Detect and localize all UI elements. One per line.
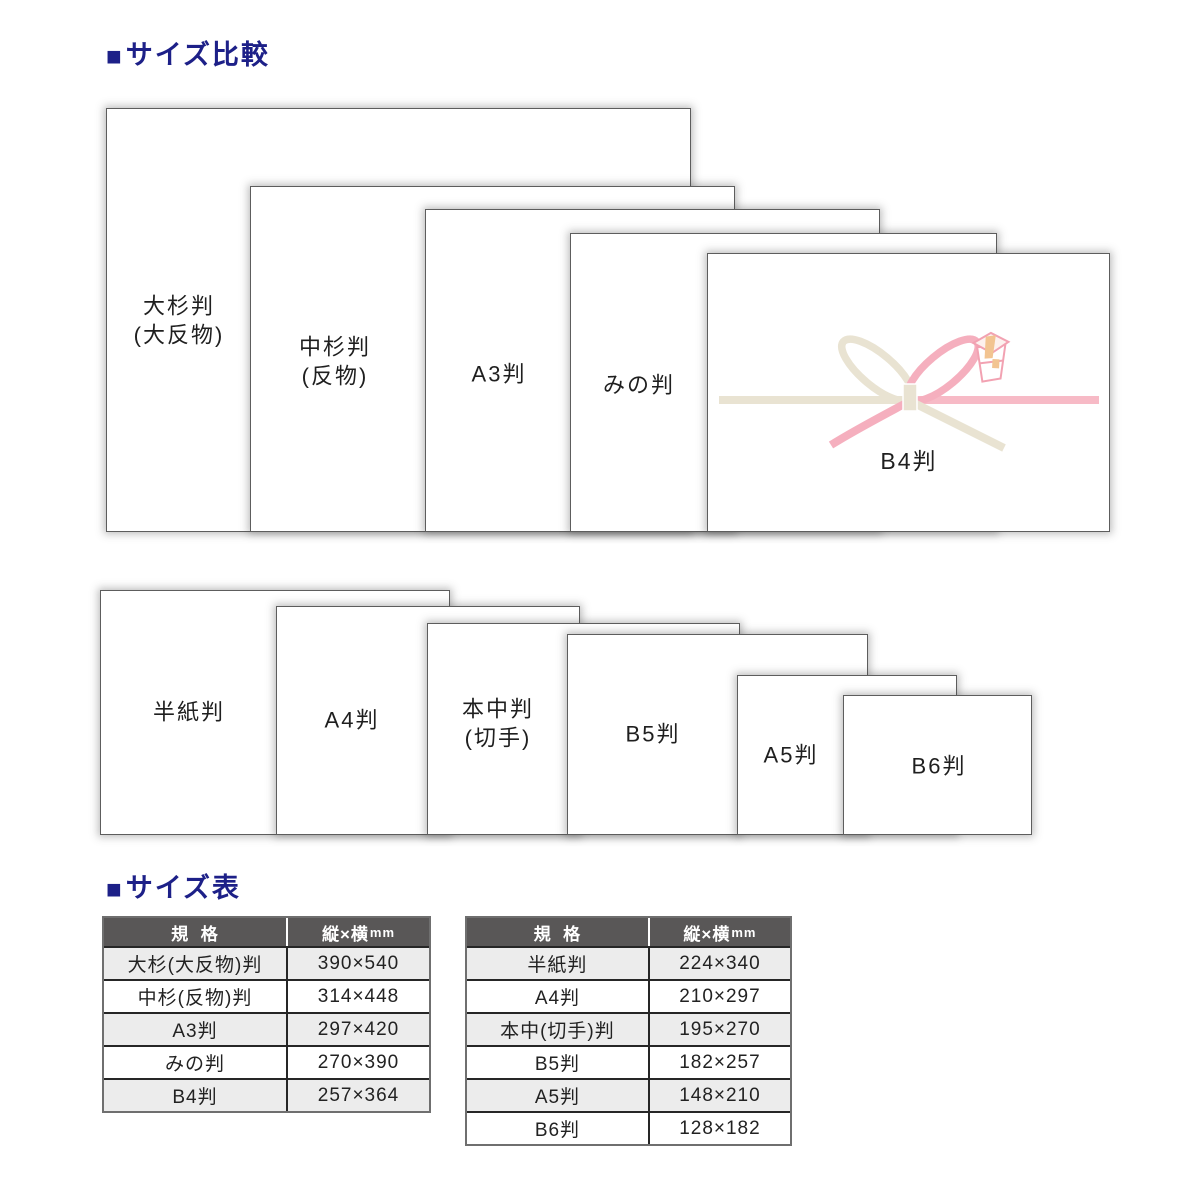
size-value-cell: 195×270 xyxy=(650,1014,790,1045)
heading-bullet-icon: ■ xyxy=(106,43,124,69)
sheet-label-a5: A5判 xyxy=(764,742,819,771)
sheet-label-oosugi: 大杉判 (大反物) xyxy=(134,292,225,349)
size-value-cell: 297×420 xyxy=(288,1014,429,1045)
table-row: B5判 182×257 xyxy=(467,1045,790,1078)
sheet-b4: B4判 xyxy=(707,253,1110,532)
size-table-left: 規 格 縦×横mm 大杉(大反物)判 390×540 中杉(反物)判 314×4… xyxy=(102,916,431,1113)
size-name-cell: A3判 xyxy=(104,1014,288,1045)
sheet-label-mino: みの判 xyxy=(603,372,675,401)
sheet-label-b5: B5判 xyxy=(626,721,681,750)
sheet-label-b6: B6判 xyxy=(912,753,967,782)
table-header-row: 規 格 縦×横mm xyxy=(467,918,790,946)
size-table-heading-text: サイズ表 xyxy=(126,875,241,902)
size-comparison-infographic: ■ サイズ比較 大杉判 (大反物) 中杉判 (反物) A3判 みの判 xyxy=(0,0,1200,1200)
size-value-cell: 128×182 xyxy=(650,1113,790,1144)
column-header-size: 縦×横mm xyxy=(288,918,429,946)
table-row: 中杉(反物)判 314×448 xyxy=(104,979,429,1012)
heading-bullet-icon: ■ xyxy=(106,876,124,902)
column-header-size-text: 縦×横 xyxy=(322,920,369,945)
size-comparison-heading-text: サイズ比較 xyxy=(126,42,270,69)
size-name-cell: 中杉(反物)判 xyxy=(104,981,288,1012)
sheet-label-honchu: 本中判 (切手) xyxy=(462,695,534,752)
sheet-label-chusugi: 中杉判 (反物) xyxy=(299,333,371,390)
column-header-size-unit: mm xyxy=(731,925,756,940)
size-name-cell: B6判 xyxy=(467,1113,650,1144)
sheet-label-a4: A4判 xyxy=(325,707,380,736)
table-row: B6判 128×182 xyxy=(467,1111,790,1144)
table-row: みの判 270×390 xyxy=(104,1045,429,1078)
mizuhiki-ribbon xyxy=(708,254,1108,530)
column-header-size: 縦×横mm xyxy=(650,918,790,946)
sheet-label-hanshi: 半紙判 xyxy=(153,699,225,728)
table-row: 本中(切手)判 195×270 xyxy=(467,1012,790,1045)
column-header-size-unit: mm xyxy=(370,925,395,940)
size-name-cell: A5判 xyxy=(467,1080,650,1111)
size-value-cell: 257×364 xyxy=(288,1080,429,1111)
size-name-cell: B5判 xyxy=(467,1047,650,1078)
size-name-cell: B4判 xyxy=(104,1080,288,1111)
table-row: A5判 148×210 xyxy=(467,1078,790,1111)
table-row: 半紙判 224×340 xyxy=(467,946,790,979)
table-row: A3判 297×420 xyxy=(104,1012,429,1045)
size-table-right: 規 格 縦×横mm 半紙判 224×340 A4判 210×297 本中(切手)… xyxy=(465,916,792,1146)
column-header-spec: 規 格 xyxy=(467,918,650,946)
ribbon-band-left xyxy=(719,396,906,404)
size-name-cell: A4判 xyxy=(467,981,650,1012)
size-name-cell: みの判 xyxy=(104,1047,288,1078)
size-value-cell: 390×540 xyxy=(288,948,429,979)
table-row: B4判 257×364 xyxy=(104,1078,429,1111)
sheet-label-a3: A3判 xyxy=(472,361,527,390)
size-comparison-heading: ■ サイズ比較 xyxy=(106,42,270,69)
size-name-cell: 本中(切手)判 xyxy=(467,1014,650,1045)
size-value-cell: 314×448 xyxy=(288,981,429,1012)
size-value-cell: 148×210 xyxy=(650,1080,790,1111)
sheet-label-b4: B4判 xyxy=(880,447,937,477)
size-value-cell: 210×297 xyxy=(650,981,790,1012)
column-header-size-text: 縦×横 xyxy=(683,920,730,945)
table-row: A4判 210×297 xyxy=(467,979,790,1012)
size-value-cell: 224×340 xyxy=(650,948,790,979)
size-name-cell: 大杉(大反物)判 xyxy=(104,948,288,979)
table-row: 大杉(大反物)判 390×540 xyxy=(104,946,429,979)
size-name-cell: 半紙判 xyxy=(467,948,650,979)
size-table-heading: ■ サイズ表 xyxy=(106,875,241,902)
sheet-b6: B6判 xyxy=(843,695,1032,835)
column-header-spec: 規 格 xyxy=(104,918,288,946)
size-value-cell: 270×390 xyxy=(288,1047,429,1078)
size-value-cell: 182×257 xyxy=(650,1047,790,1078)
table-header-row: 規 格 縦×横mm xyxy=(104,918,429,946)
